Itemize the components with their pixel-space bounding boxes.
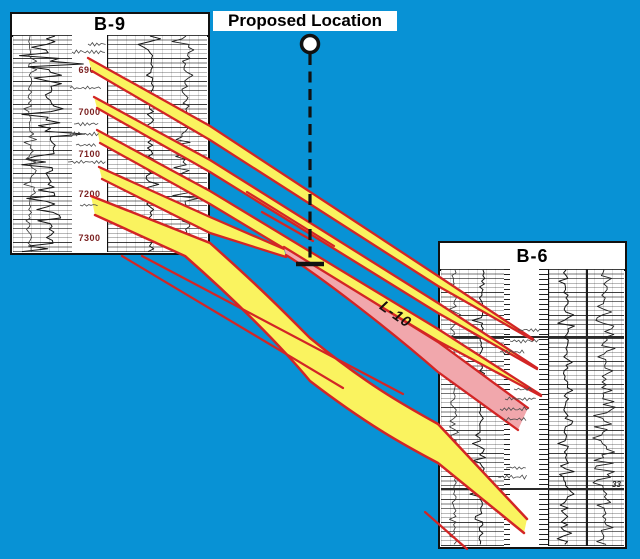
b6-section-line-upper — [441, 336, 624, 338]
b6-right-track-divider — [586, 269, 588, 546]
well-log-panel-b9: B-9 6900 7000 7100 7200 7300 — [10, 12, 210, 255]
well-correlation-cross-section: B-9 6900 7000 7100 7200 7300 B-6 33 — [0, 0, 640, 559]
proposed-location-label: Proposed Location — [213, 11, 397, 31]
l10-band-label: L-10 — [376, 298, 414, 332]
b6-left-log-track — [441, 269, 505, 546]
well-log-panel-b6: B-6 33 — [438, 241, 627, 549]
pinchout-line-2 — [262, 212, 313, 241]
panel-b9-header: B-9 — [12, 14, 208, 37]
b9-depth-7300: 7300 — [72, 233, 107, 243]
b6-depth-track — [504, 269, 548, 546]
b9-right-log-track — [107, 35, 207, 252]
pinchout-line-4 — [142, 256, 403, 394]
b6-section-line-lower — [441, 488, 624, 490]
b9-depth-6900: 6900 — [72, 65, 107, 75]
b6-depth-ticks-left — [504, 269, 510, 546]
b9-depth-7200: 7200 — [72, 189, 107, 199]
panel-b6-header: B-6 — [440, 243, 625, 271]
well-title-b6: B-6 — [516, 246, 548, 267]
b9-depth-7100: 7100 — [72, 149, 107, 159]
well-title-b9: B-9 — [94, 14, 126, 35]
pinchout-line-1 — [247, 192, 334, 246]
pinchout-line-3 — [122, 256, 343, 388]
proposed-location-marker-icon — [302, 36, 319, 53]
b9-left-log-track — [13, 35, 73, 252]
b6-depth-ticks-right — [539, 269, 548, 546]
b9-depth-7000: 7000 — [72, 107, 107, 117]
b6-edge-annotation: 33 — [612, 480, 621, 489]
